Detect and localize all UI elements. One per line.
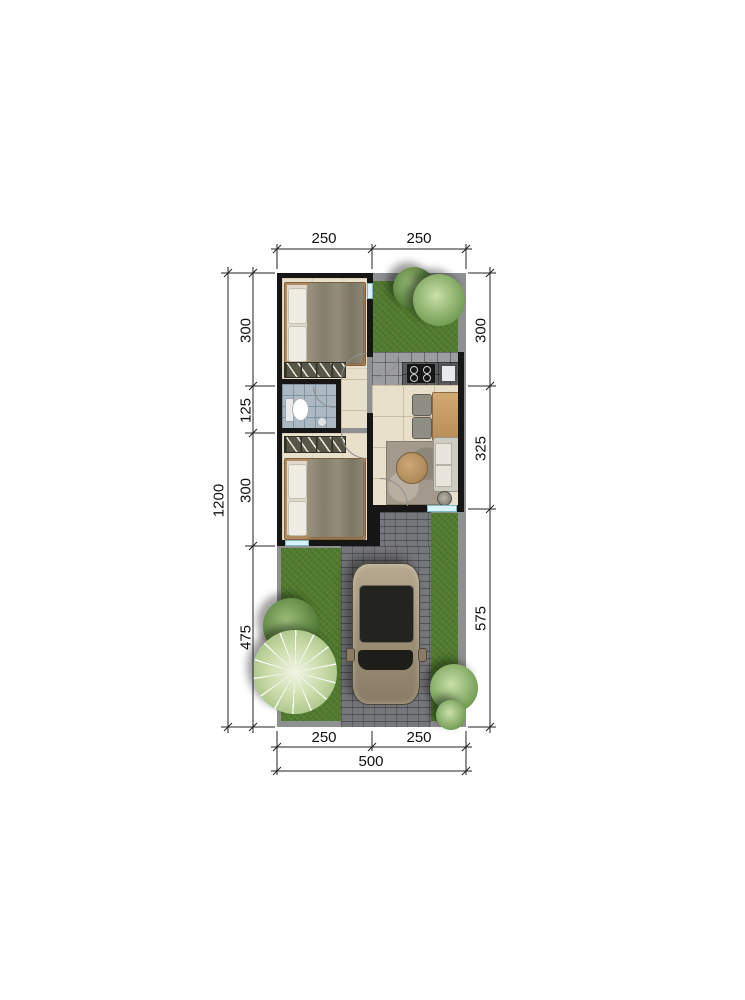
dimension-lines [0,0,745,1000]
dim-left-total: 1200 [211,479,228,523]
dim-left-seg-1: 300 [238,309,255,353]
dim-left-seg-3: 300 [238,469,255,513]
dim-right-seg-2: 325 [473,427,490,471]
dim-bottom-total: 500 [349,753,393,770]
dim-left-seg-4: 475 [238,616,255,660]
dim-right-seg-1: 300 [473,309,490,353]
floor-plan-canvas: 250 250 1200 300 125 300 475 300 325 575… [0,0,745,1000]
dim-bottom-right: 250 [397,729,441,746]
dim-top-left: 250 [302,230,346,247]
dim-right-seg-3: 575 [473,597,490,641]
dim-top-right: 250 [397,230,441,247]
dim-bottom-left: 250 [302,729,346,746]
dim-left-seg-2: 125 [238,389,255,433]
